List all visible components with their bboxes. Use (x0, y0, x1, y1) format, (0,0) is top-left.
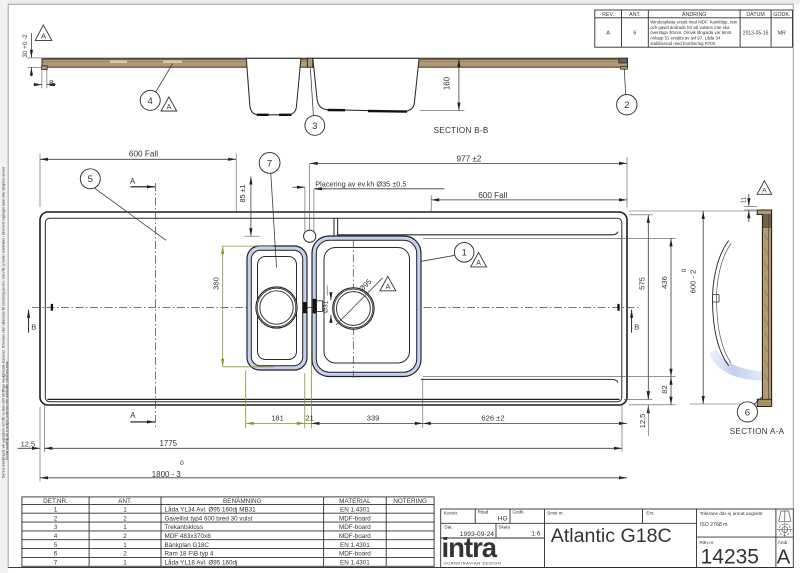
svg-text:2: 2 (123, 533, 127, 540)
svg-text:6: 6 (54, 551, 58, 558)
svg-text:REV.: REV. (602, 12, 614, 18)
svg-text:intra: intra (442, 532, 498, 563)
svg-text:DET.NR.: DET.NR. (43, 498, 68, 505)
svg-text:HG: HG (498, 515, 508, 522)
svg-text:DATUM: DATUM (746, 12, 764, 18)
svg-text:1: 1 (123, 524, 127, 531)
svg-text:12,5: 12,5 (21, 439, 36, 448)
svg-text:ANT.: ANT. (118, 498, 132, 505)
svg-text:EN 1.4301: EN 1.4301 (340, 542, 370, 549)
svg-text:7: 7 (54, 560, 58, 567)
svg-text:A: A (385, 284, 390, 291)
svg-text:MDF-board: MDF-board (339, 515, 371, 522)
svg-text:1: 1 (123, 542, 127, 549)
svg-text:160: 160 (442, 76, 451, 90)
svg-text:1775: 1775 (160, 439, 178, 448)
svg-text:Trekantskloss: Trekantskloss (165, 524, 204, 531)
svg-text:2: 2 (123, 551, 127, 558)
svg-text:B: B (31, 323, 36, 332)
svg-text:11: 11 (741, 196, 747, 203)
svg-text:Smst nr.: Smst nr. (547, 511, 564, 516)
svg-text:Dat.: Dat. (444, 524, 452, 529)
svg-text:1:6: 1:6 (531, 531, 541, 538)
svg-text:Ø31: Ø31 (322, 300, 329, 313)
svg-text:5: 5 (88, 174, 93, 185)
svg-text:600 Fall: 600 Fall (129, 150, 158, 159)
svg-text:600 - 2: 600 - 2 (689, 270, 698, 294)
svg-text:A: A (130, 177, 136, 186)
svg-text:Denna handling får ej delges,: Denna handling får ej delges, kopieras e… (5, 361, 9, 460)
svg-text:2: 2 (54, 515, 58, 522)
svg-text:överstiga 30mm. Omvik långsida: överstiga 30mm. Omvik långsida var 9mm. (650, 30, 732, 35)
svg-text:Låda YL18 Avl. Ø95 160dj: Låda YL18 Avl. Ø95 160dj (165, 559, 238, 567)
svg-text:A: A (130, 411, 136, 420)
svg-text:12,5: 12,5 (638, 414, 647, 429)
svg-text:stabiliserad med bombering R70: stabiliserad med bombering R700. (650, 41, 716, 46)
svg-text:Bänkplan G18C: Bänkplan G18C (165, 542, 210, 549)
svg-text:380: 380 (211, 277, 220, 290)
svg-text:Windesplatta ersatt med MDF. K: Windesplatta ersatt med MDF. Kantklipp, … (650, 19, 738, 24)
svg-text:4: 4 (148, 96, 154, 107)
svg-text:Placering av ev.kh Ø35 ±0,5: Placering av ev.kh Ø35 ±0,5 (315, 180, 406, 189)
svg-text:MR: MR (778, 31, 786, 37)
svg-text:Konstr.: Konstr. (444, 510, 458, 515)
svg-text:ANT.: ANT. (629, 12, 640, 18)
svg-text:NOTERING: NOTERING (393, 498, 427, 505)
svg-text:2: 2 (123, 515, 127, 522)
svg-text:1: 1 (123, 507, 127, 514)
svg-text:6: 6 (745, 407, 750, 418)
svg-text:Ram 18 F\B typ 4: Ram 18 F\B typ 4 (165, 551, 214, 558)
svg-text:MDF-board: MDF-board (339, 533, 371, 540)
svg-text:181: 181 (271, 414, 284, 423)
svg-text:3: 3 (312, 121, 317, 132)
svg-text:SCANDINAVIAN DESIGN: SCANDINAVIAN DESIGN (444, 561, 502, 566)
svg-text:Skala: Skala (498, 524, 510, 529)
svg-text:Atlantic G18C: Atlantic G18C (551, 525, 672, 547)
svg-text:SECTION B-B: SECTION B-B (434, 126, 489, 135)
svg-text:600 Fall: 600 Fall (478, 191, 507, 200)
svg-text:MDF-board: MDF-board (339, 551, 371, 558)
svg-text:Låda YL34 Avl. Ø95 160dj MB31: Låda YL34 Avl. Ø95 160dj MB31 (165, 506, 257, 514)
svg-text:Avlopp 51 ersätts av avl 97. L: Avlopp 51 ersätts av avl 97. Låda 34 (650, 36, 721, 41)
svg-text:626 ±2: 626 ±2 (481, 414, 504, 423)
svg-text:436: 436 (660, 276, 669, 289)
svg-text:0: 0 (180, 460, 184, 467)
svg-text:2013-05-16: 2013-05-16 (743, 31, 769, 37)
svg-text:82: 82 (660, 385, 669, 393)
svg-text:2: 2 (624, 100, 629, 111)
svg-text:BENÄMNING: BENÄMNING (223, 497, 262, 505)
svg-text:A: A (606, 31, 610, 37)
svg-text:7: 7 (267, 158, 272, 169)
svg-text:B: B (634, 323, 639, 332)
svg-text:339: 339 (367, 414, 380, 423)
svg-text:3: 3 (54, 524, 58, 531)
svg-text:A: A (762, 187, 767, 194)
svg-text:Godk.: Godk. (512, 510, 524, 515)
svg-text:8: 8 (49, 79, 54, 88)
svg-text:4: 4 (54, 533, 58, 540)
svg-text:1800 - 3: 1800 - 3 (152, 470, 182, 479)
svg-text:30 +0 -2: 30 +0 -2 (22, 34, 29, 58)
svg-text:EN 1.4301: EN 1.4301 (340, 507, 370, 514)
svg-text:21: 21 (305, 414, 313, 423)
svg-text:MDF 483x370x8: MDF 483x370x8 (165, 533, 212, 540)
svg-text:1: 1 (462, 248, 467, 259)
svg-text:977 ±2: 977 ±2 (457, 154, 482, 163)
svg-text:MATERIAL: MATERIAL (339, 498, 371, 505)
svg-text:ÄNDRING: ÄNDRING (682, 11, 706, 18)
svg-text:Tolerans där ej annat angivits: Tolerans där ej annat angivits: (700, 511, 764, 517)
svg-text:6: 6 (633, 31, 636, 37)
svg-text:85 ±1: 85 ±1 (238, 185, 247, 203)
svg-text:0: 0 (681, 268, 688, 272)
svg-text:5: 5 (54, 542, 58, 549)
svg-text:1: 1 (123, 560, 127, 567)
svg-text:1: 1 (54, 507, 58, 514)
svg-text:A: A (777, 546, 791, 569)
svg-text:A: A (476, 260, 481, 267)
svg-text:MDF-board: MDF-board (339, 524, 371, 531)
svg-text:SECTION A-A: SECTION A-A (730, 427, 785, 436)
svg-text:Ers.: Ers. (646, 510, 654, 515)
svg-text:Ritad: Ritad (478, 510, 489, 515)
svg-text:och gavel ändrade för att vuls: och gavel ändrade för att vulsten inte s… (650, 25, 730, 30)
svg-text:Gavellist typ4 600 bred 30 vul: Gavellist typ4 600 bred 30 vulst (165, 515, 253, 522)
svg-text:EN 1.4301: EN 1.4301 (340, 560, 370, 567)
svg-text:575: 575 (637, 277, 646, 290)
svg-text:A: A (167, 104, 172, 111)
svg-text:14235: 14235 (701, 546, 759, 569)
svg-text:GODK.: GODK. (773, 12, 790, 18)
svg-text:ISO 2768 m: ISO 2768 m (700, 522, 728, 528)
